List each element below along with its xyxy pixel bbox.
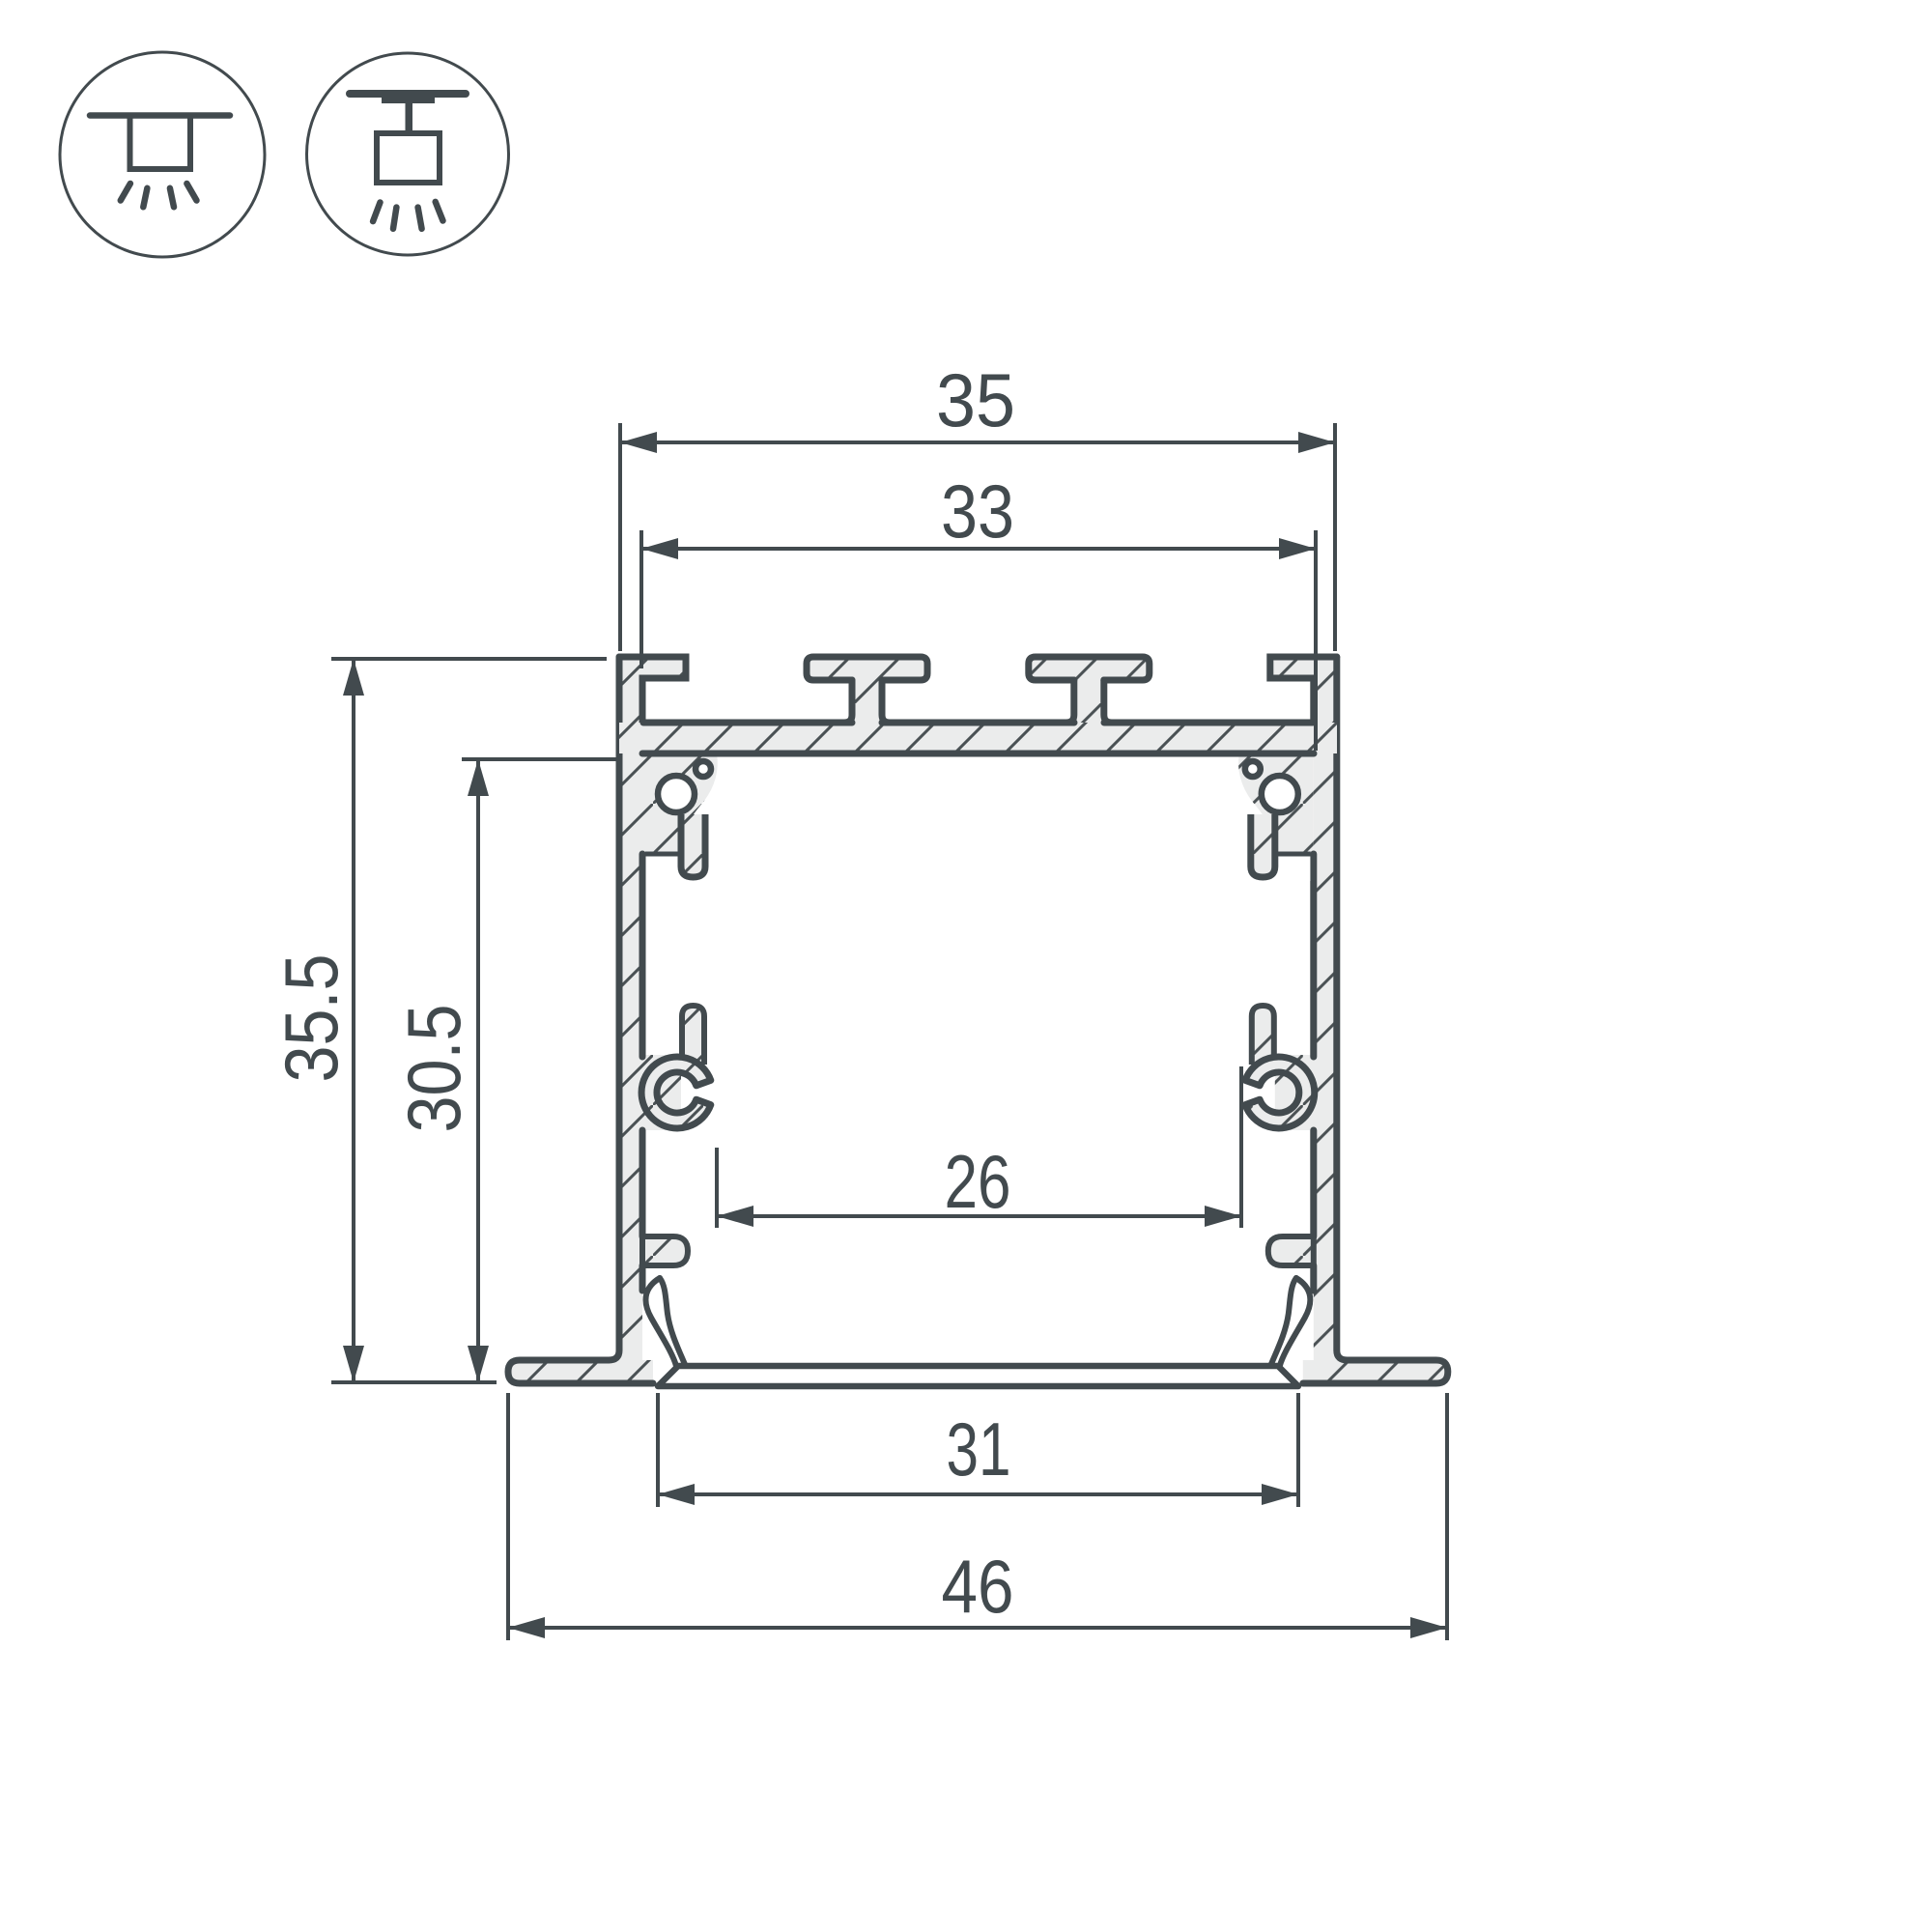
svg-text:35: 35 (936, 357, 1015, 442)
svg-text:46: 46 (942, 1544, 1014, 1629)
svg-text:31: 31 (947, 1406, 1011, 1492)
svg-text:30.5: 30.5 (391, 1005, 476, 1133)
svg-text:35.5: 35.5 (269, 954, 354, 1083)
svg-text:26: 26 (945, 1139, 1011, 1224)
svg-text:33: 33 (941, 469, 1014, 554)
